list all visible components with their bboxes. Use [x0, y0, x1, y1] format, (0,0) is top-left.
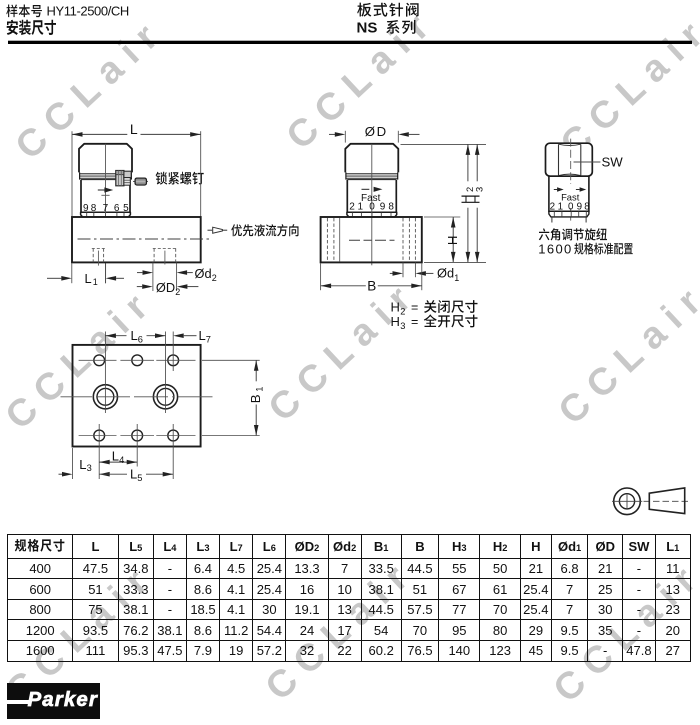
svg-text:L: L	[79, 457, 86, 472]
svg-text:4: 4	[119, 455, 124, 465]
svg-text:3: 3	[400, 321, 405, 331]
svg-text:1: 1	[93, 277, 98, 287]
svg-text:D: D	[377, 124, 387, 139]
svg-text:Ød: Ød	[437, 266, 454, 281]
svg-text:H: H	[445, 236, 460, 246]
svg-text:HY11-2500/CH: HY11-2500/CH	[47, 4, 129, 19]
svg-text:B: B	[367, 278, 376, 293]
svg-text:2: 2	[349, 201, 355, 212]
svg-text:1: 1	[454, 273, 459, 283]
svg-text:1600: 1600	[538, 241, 572, 256]
svg-text:2: 2	[175, 287, 180, 297]
svg-text:3: 3	[474, 187, 484, 192]
svg-text:7: 7	[206, 334, 211, 344]
svg-text:6: 6	[138, 334, 143, 344]
svg-text:H: H	[468, 194, 483, 204]
svg-text:2: 2	[212, 273, 217, 283]
svg-text:2: 2	[400, 306, 405, 316]
svg-text:L: L	[112, 449, 119, 464]
svg-text:H: H	[391, 314, 400, 329]
svg-text:ØD: ØD	[156, 280, 175, 295]
svg-text:Ød: Ød	[195, 266, 212, 281]
svg-text:NS: NS	[357, 20, 378, 37]
svg-text:L: L	[199, 328, 206, 343]
svg-text:3: 3	[87, 463, 92, 473]
svg-text:L: L	[84, 271, 91, 286]
svg-text:=: =	[411, 315, 418, 329]
svg-text:6: 6	[114, 203, 120, 214]
svg-text:Fast: Fast	[361, 193, 381, 204]
svg-text:8: 8	[91, 203, 97, 214]
svg-text:L: L	[130, 467, 137, 482]
svg-text:8: 8	[388, 201, 394, 212]
svg-text:L: L	[130, 121, 138, 137]
svg-text:B: B	[248, 394, 263, 403]
svg-text:H: H	[391, 300, 400, 315]
svg-text:9: 9	[83, 203, 89, 214]
svg-text:=: =	[411, 300, 418, 314]
svg-text:SW: SW	[602, 155, 624, 170]
svg-text:1: 1	[254, 387, 264, 392]
svg-text:L: L	[131, 328, 138, 343]
svg-text:5: 5	[123, 203, 129, 214]
svg-text:Ø: Ø	[365, 124, 375, 139]
svg-text:9: 9	[380, 201, 386, 212]
svg-text:7: 7	[103, 203, 109, 214]
svg-text:5: 5	[137, 473, 142, 483]
